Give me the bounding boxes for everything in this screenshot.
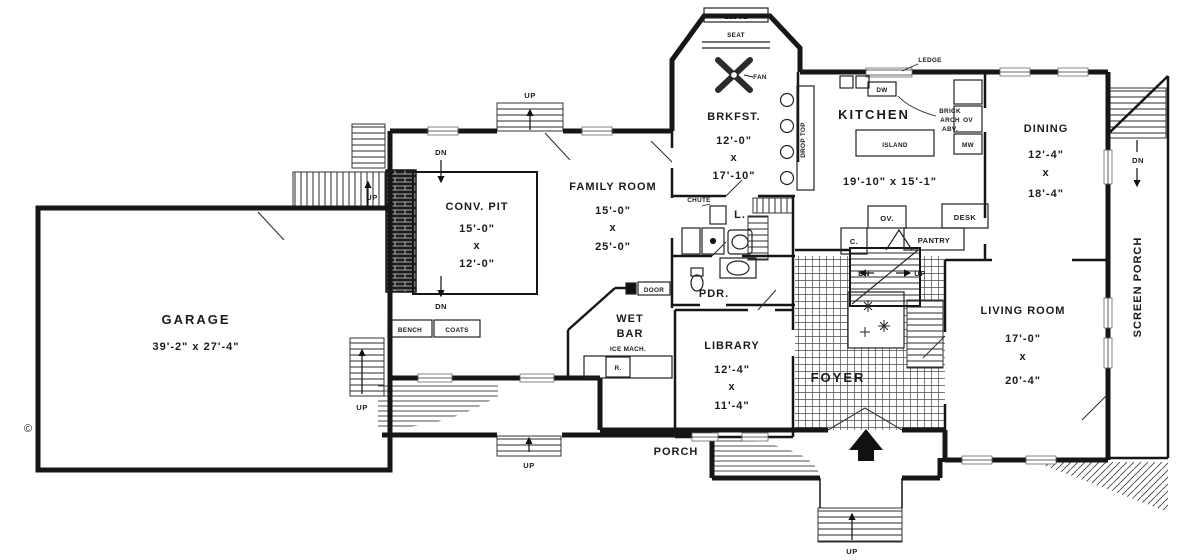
- living-room-label: LIVING ROOM: [981, 305, 1066, 317]
- stool: [781, 172, 794, 185]
- kitchen-ledge-label: LEDGE: [918, 57, 942, 64]
- microwave-label: MW: [962, 142, 975, 149]
- powder-room-label: PDR.: [699, 288, 729, 300]
- window: [1026, 456, 1056, 464]
- kitchen-sink-basin: [856, 76, 869, 88]
- deck-hatch-southeast: [1035, 462, 1168, 512]
- washer-agitator: [711, 239, 716, 244]
- wet-bar-label-1: WET: [616, 313, 643, 325]
- door-step: [626, 283, 636, 294]
- window: [1104, 150, 1112, 184]
- coats-label: COATS: [445, 327, 469, 334]
- family-room-d2: 25'-0": [595, 241, 631, 253]
- refrigerator-label: R.: [615, 365, 622, 372]
- bay-seat-lines: [702, 42, 770, 48]
- library-d2: 11'-4": [714, 400, 749, 412]
- breakfast-d1: 12'-0": [716, 135, 752, 147]
- family-room-d1: 15'-0": [595, 205, 631, 217]
- up-label: UP: [523, 461, 534, 470]
- oven-label: OV.: [880, 214, 893, 223]
- foyer-label: FOYER: [811, 370, 866, 385]
- wet-bar-label-2: BAR: [617, 328, 644, 340]
- living-room-d1: 17'-0": [1005, 333, 1041, 345]
- brick-arch-label-3: ABV.: [942, 126, 958, 133]
- dn-label: DN: [435, 148, 447, 157]
- breakfast-label: BRKFST.: [707, 111, 760, 123]
- floor-plan: GARAGE 39'-2" x 27'-4" © CONV. PIT 15'-0…: [0, 0, 1180, 560]
- library-d1: 12'-4": [714, 364, 750, 376]
- library-label: LIBRARY: [704, 340, 759, 352]
- seat-label: SEAT: [727, 32, 745, 39]
- kitchen-dims: 19'-10" x 15'-1": [843, 176, 937, 188]
- kitchen-sink-basin: [840, 76, 853, 88]
- window: [428, 127, 458, 135]
- window: [962, 456, 992, 464]
- porch-steps-bottom: [818, 508, 902, 542]
- conv-pit-sep: x: [473, 240, 480, 252]
- drop-top-label: DROP TOP: [800, 122, 807, 158]
- window: [1104, 338, 1112, 368]
- pantry-label: PANTRY: [918, 236, 950, 245]
- floor-plan-canvas: GARAGE 39'-2" x 27'-4" © CONV. PIT 15'-0…: [0, 0, 1180, 560]
- brick-arch-label-1: BRICK: [939, 108, 961, 115]
- exterior-walls: [38, 16, 1108, 478]
- window: [520, 374, 554, 382]
- dryer: [682, 228, 700, 254]
- window: [1104, 298, 1112, 328]
- wet-bar-counter: [584, 356, 672, 378]
- brick-arch-label-2: ARCH: [940, 117, 960, 124]
- labels: GARAGE 39'-2" x 27'-4" © CONV. PIT 15'-0…: [24, 14, 1144, 556]
- powder-sink: [727, 261, 749, 275]
- family-room-label: FAMILY ROOM: [569, 181, 656, 193]
- linen-closet: [753, 198, 793, 213]
- dn-label: DN: [435, 302, 447, 311]
- dining-d1: 12'-4": [1028, 149, 1064, 161]
- dining-label: DINING: [1024, 123, 1069, 135]
- up-label: UP: [914, 269, 925, 278]
- ice-machine-label: ICE MACH.: [610, 346, 646, 353]
- living-room-sep: x: [1019, 351, 1026, 363]
- door-label: DOOR: [644, 287, 664, 294]
- wall-oven-label: OV: [963, 117, 973, 124]
- up-label: UP: [356, 403, 367, 412]
- garage-dims: 39'-2" x 27'-4": [153, 341, 240, 353]
- window: [1058, 68, 1088, 76]
- laundry-chute-box: [710, 206, 726, 224]
- front-walk-right: [714, 436, 820, 476]
- stool: [781, 120, 794, 133]
- bench-label: BENCH: [398, 327, 422, 334]
- screen-porch-label: SCREEN PORCH: [1132, 237, 1144, 338]
- garage-walls: [38, 208, 390, 470]
- copyright-mark: ©: [24, 423, 32, 435]
- window: [582, 127, 612, 135]
- up-label: UP: [846, 547, 857, 556]
- kitchen-label: KITCHEN: [838, 107, 910, 122]
- up-label: UP: [366, 193, 377, 202]
- window: [742, 433, 768, 441]
- dn-label: DN: [1132, 156, 1144, 165]
- conv-pit-d2: 12'-0": [459, 258, 495, 270]
- island-label: ISLAND: [882, 142, 908, 149]
- closet-label: C.: [850, 237, 858, 246]
- breakfast-d2: 17'-10": [713, 170, 756, 182]
- chute-leader: [702, 204, 710, 206]
- window: [418, 374, 452, 382]
- porch-label: PORCH: [654, 446, 699, 458]
- dishwasher-label: DW: [876, 87, 888, 94]
- conv-pit-d1: 15'-0": [459, 223, 495, 235]
- family-room-sep: x: [609, 222, 616, 234]
- garage-label: GARAGE: [161, 312, 230, 327]
- garage-entry-steps: [350, 338, 384, 396]
- entry-arrow-icon: [849, 429, 883, 461]
- chute-label: CHUTE: [687, 197, 711, 204]
- living-room-d2: 20'-4": [1005, 375, 1041, 387]
- window: [1000, 68, 1030, 76]
- front-walk-left: [378, 382, 498, 428]
- ledge-label: LEDGE: [724, 14, 748, 21]
- stairs-west-entry: [293, 172, 387, 210]
- dn-label: DN: [858, 269, 870, 278]
- up-label: UP: [524, 91, 535, 100]
- stool: [781, 146, 794, 159]
- fan-label: FAN: [753, 74, 767, 81]
- kitchen-cabinet: [954, 80, 982, 104]
- breakfast-sep: x: [730, 152, 737, 164]
- window: [692, 433, 718, 441]
- foyer-stairs: [907, 300, 943, 368]
- conv-pit-label: CONV. PIT: [446, 201, 509, 213]
- stool: [781, 94, 794, 107]
- laundry-sink-bowl: [732, 235, 748, 249]
- desk-label: DESK: [954, 213, 977, 222]
- dining-d2: 18'-4": [1028, 188, 1064, 200]
- library-sep: x: [728, 381, 735, 393]
- dining-sep: x: [1042, 167, 1049, 179]
- stairs-west-upper: [352, 124, 385, 168]
- fan-leader-line: [744, 75, 753, 77]
- laundry-label: L.: [734, 209, 746, 221]
- screen-porch-steps: [1110, 88, 1166, 138]
